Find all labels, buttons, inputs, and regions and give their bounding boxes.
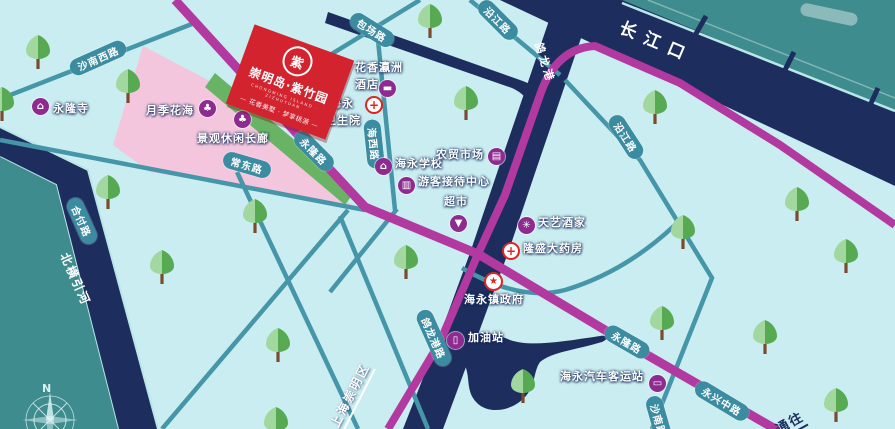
poi-label-rose-sea: 月季花海 xyxy=(146,102,194,118)
tree-poi-icon: ♣ xyxy=(199,100,216,117)
tree-icon xyxy=(834,239,858,273)
road-haixi xyxy=(377,30,395,210)
poi-label-government: 海永镇政府 xyxy=(464,291,524,307)
poi-label-reception: 游客接待中心 xyxy=(418,173,490,189)
poi-label-corridor: 景观休闲长廊 xyxy=(197,130,269,146)
government-star-icon: ★ xyxy=(484,272,503,291)
tree-icon xyxy=(266,328,290,362)
reception-icon: ▥ xyxy=(398,177,415,194)
tree-icon xyxy=(26,35,50,69)
tree-icon xyxy=(643,90,667,124)
compass-north-label: N xyxy=(42,382,51,395)
school-icon: ⌂ xyxy=(375,158,392,175)
hotel-bed-icon: ▬ xyxy=(379,80,396,97)
shopping-bag-icon: ▼ xyxy=(450,215,467,232)
tree-icon xyxy=(785,187,809,221)
tree-icon xyxy=(650,306,674,340)
tree-icon xyxy=(394,245,418,279)
temple-icon: ⌂ xyxy=(32,98,49,115)
tree-icon xyxy=(96,175,120,209)
poi-label-market: 农贸市场 xyxy=(436,146,484,162)
fuel-pump-icon: ▯ xyxy=(447,332,464,349)
poi-label-hotel-1: 花香瀛洲 xyxy=(355,59,403,75)
poi-label-supermarket: 超市 xyxy=(444,193,468,209)
road-sw-a xyxy=(162,210,348,429)
tree-icon xyxy=(753,320,777,354)
poi-label-hotel-2: 酒店 xyxy=(355,76,379,92)
tree-icon xyxy=(150,250,174,284)
poi-label-pharmacy: 隆盛大药房 xyxy=(523,240,583,256)
bus-icon: ▭ xyxy=(649,375,666,392)
pharmacy-cross-icon: + xyxy=(502,242,520,260)
tree-icon xyxy=(264,407,288,429)
poi-label-bus-station: 海永汽车客运站 xyxy=(560,368,644,384)
poi-label-gas-station: 加油站 xyxy=(468,329,504,345)
project-logo-char: 紫 xyxy=(288,50,307,72)
medical-cross-icon: + xyxy=(365,96,383,114)
market-icon: ▤ xyxy=(488,148,505,165)
flower-icon: ✳ xyxy=(518,217,535,234)
tourist-map: N 长江口 鸽龙港 北横引河 上海崇明区 通往 沙南西路 包场路 沿江路 沿江路… xyxy=(0,0,895,429)
poi-label-restaurant: 天艺酒家 xyxy=(538,214,586,230)
tree-icon xyxy=(418,4,442,38)
poi-label-temple: 永隆寺 xyxy=(53,100,89,116)
tree-icon xyxy=(454,86,478,120)
tree-icon xyxy=(824,388,848,422)
tree-poi-icon: ♣ xyxy=(234,111,251,128)
